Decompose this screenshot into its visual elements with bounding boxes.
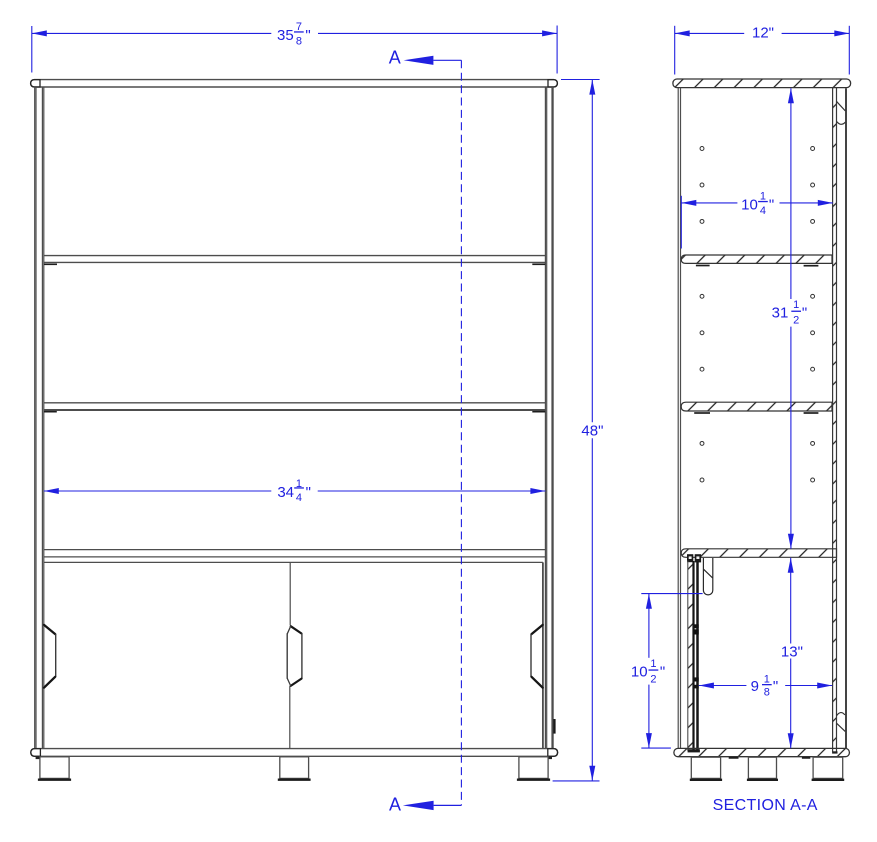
svg-text:": " bbox=[660, 663, 665, 680]
svg-text:4: 4 bbox=[296, 492, 302, 504]
svg-text:13": 13" bbox=[781, 644, 803, 661]
svg-text:8: 8 bbox=[296, 35, 302, 47]
svg-text:2: 2 bbox=[650, 673, 656, 685]
svg-text:A: A bbox=[389, 47, 401, 67]
svg-text:7: 7 bbox=[296, 21, 302, 33]
svg-text:35: 35 bbox=[277, 27, 294, 44]
svg-text:A: A bbox=[389, 795, 401, 815]
svg-text:1: 1 bbox=[760, 191, 766, 203]
svg-text:": " bbox=[305, 27, 310, 44]
svg-text:8: 8 bbox=[764, 687, 770, 699]
svg-text:1: 1 bbox=[793, 299, 799, 311]
svg-text:12": 12" bbox=[752, 24, 774, 41]
svg-text:34: 34 bbox=[277, 484, 294, 501]
svg-text:SECTION A-A: SECTION A-A bbox=[713, 797, 818, 814]
svg-text:": " bbox=[769, 197, 774, 214]
svg-text:1: 1 bbox=[650, 658, 656, 670]
svg-text:2: 2 bbox=[793, 314, 799, 326]
svg-text:1: 1 bbox=[764, 674, 770, 686]
svg-text:9: 9 bbox=[751, 678, 759, 695]
svg-text:": " bbox=[802, 305, 807, 322]
svg-text:10: 10 bbox=[741, 197, 758, 214]
svg-text:4: 4 bbox=[760, 205, 766, 217]
svg-text:": " bbox=[306, 484, 311, 501]
svg-text:10: 10 bbox=[631, 663, 648, 680]
svg-text:48": 48" bbox=[581, 423, 603, 440]
svg-text:31: 31 bbox=[772, 305, 789, 322]
svg-text:": " bbox=[773, 678, 778, 695]
